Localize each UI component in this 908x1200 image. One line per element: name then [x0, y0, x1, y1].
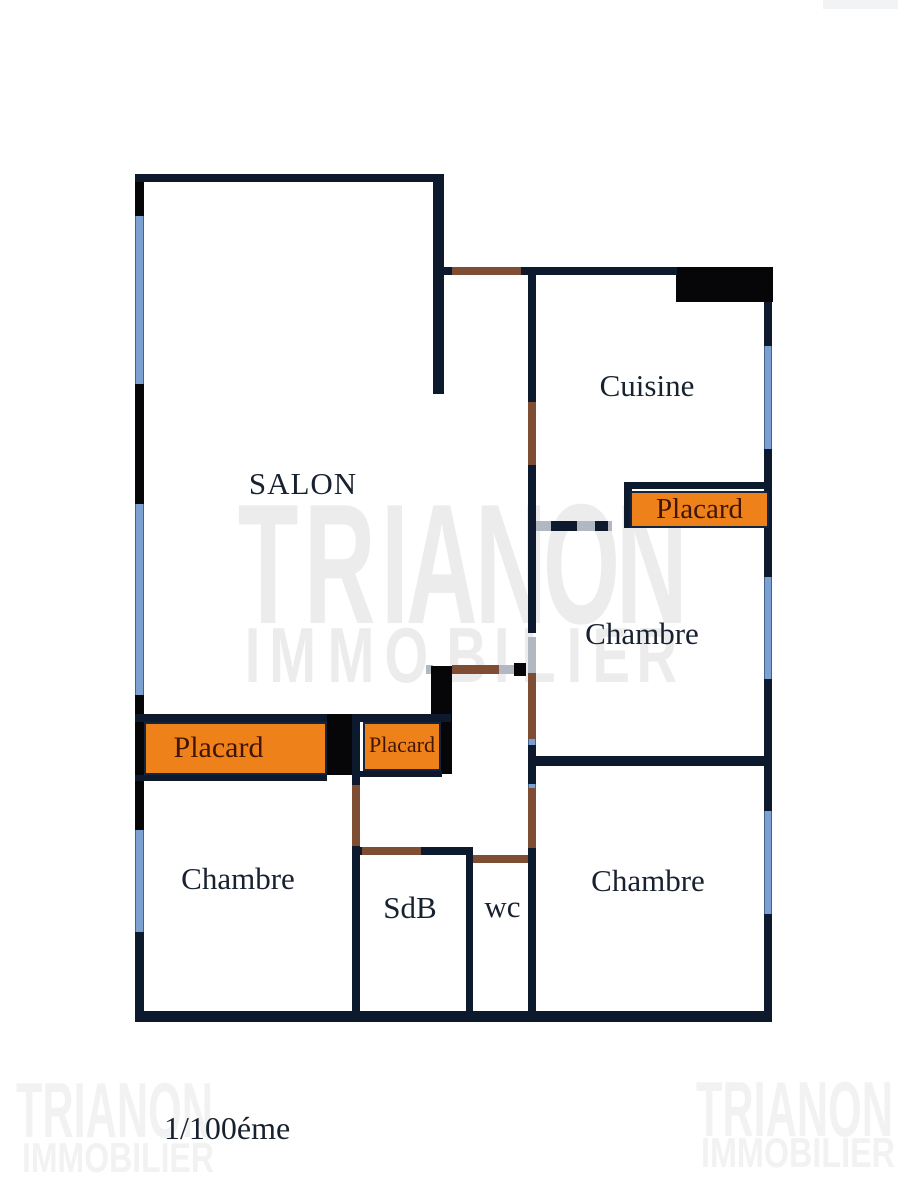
svg-text:IMMOBILIER: IMMOBILIER	[701, 1129, 895, 1176]
